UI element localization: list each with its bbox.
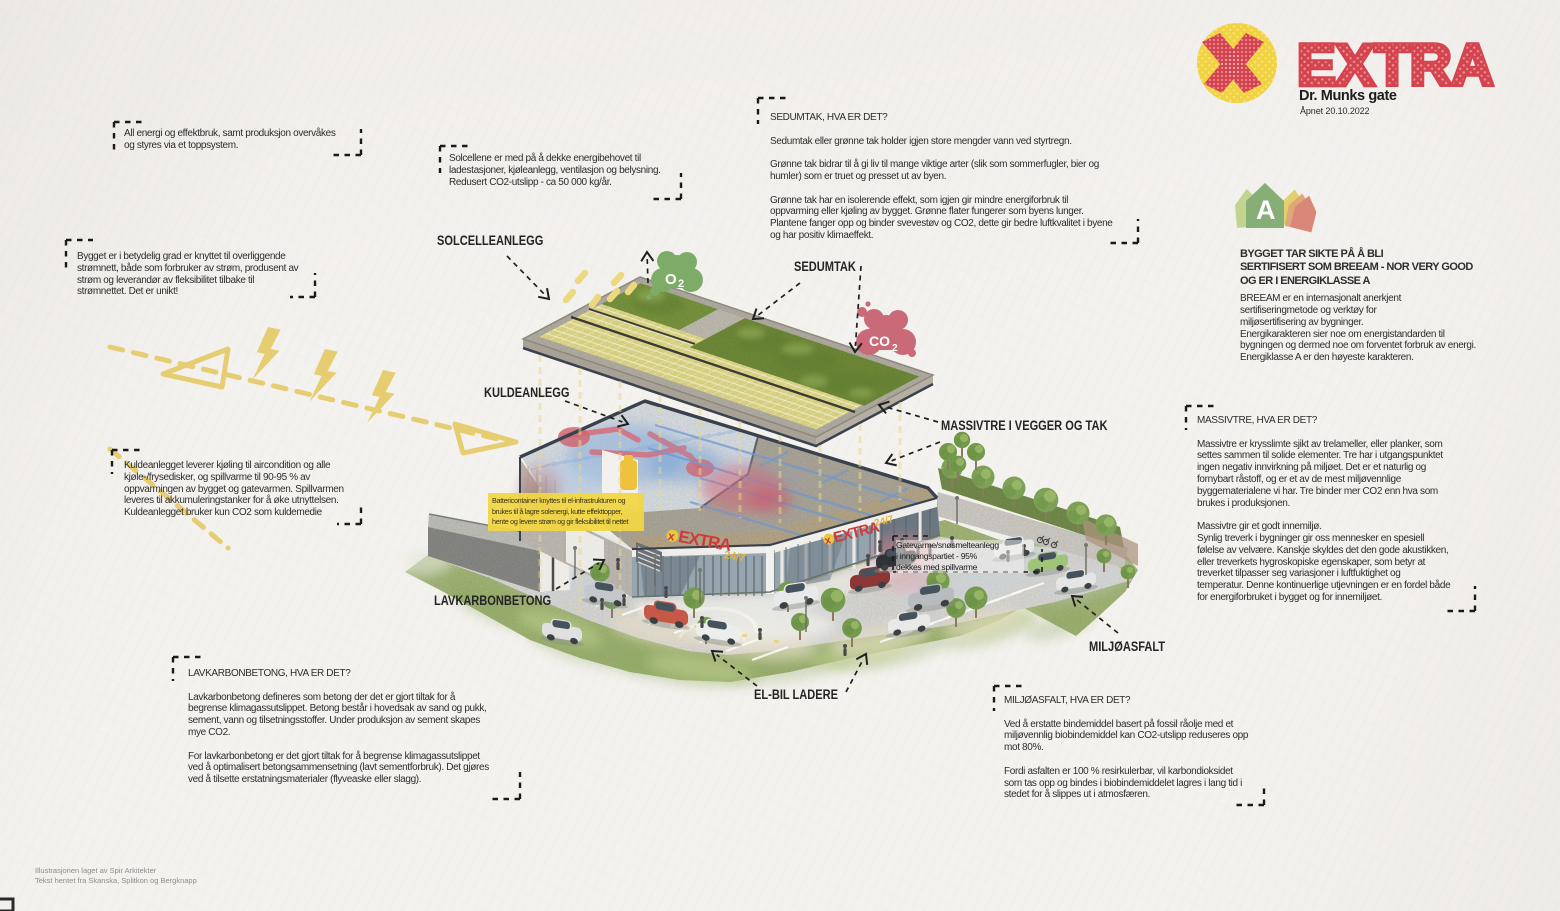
svg-text:O: O	[665, 271, 677, 288]
svg-text:A: A	[1256, 195, 1276, 225]
svg-text:2: 2	[892, 343, 898, 354]
svg-text:2: 2	[678, 278, 684, 290]
svg-text:CO: CO	[869, 333, 890, 349]
